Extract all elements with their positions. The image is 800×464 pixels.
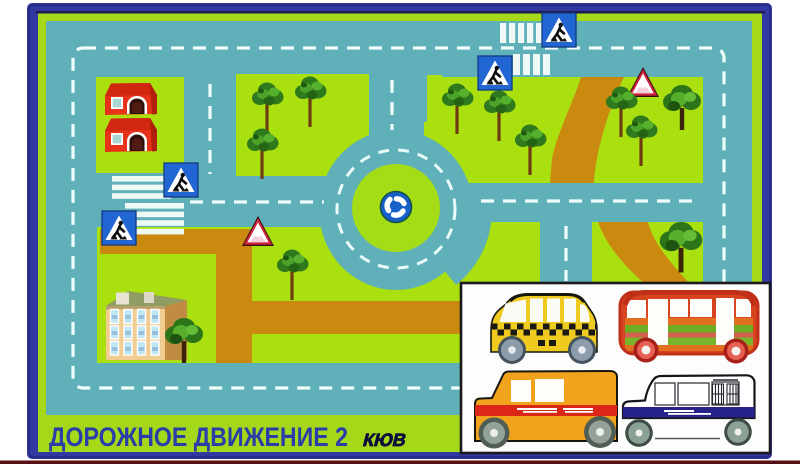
svg-text:КЮВ: КЮВ bbox=[361, 429, 409, 450]
svg-text:ДОРОЖНОЕ ДВИЖЕНИЕ 2: ДОРОЖНОЕ ДВИЖЕНИЕ 2 bbox=[49, 422, 348, 452]
